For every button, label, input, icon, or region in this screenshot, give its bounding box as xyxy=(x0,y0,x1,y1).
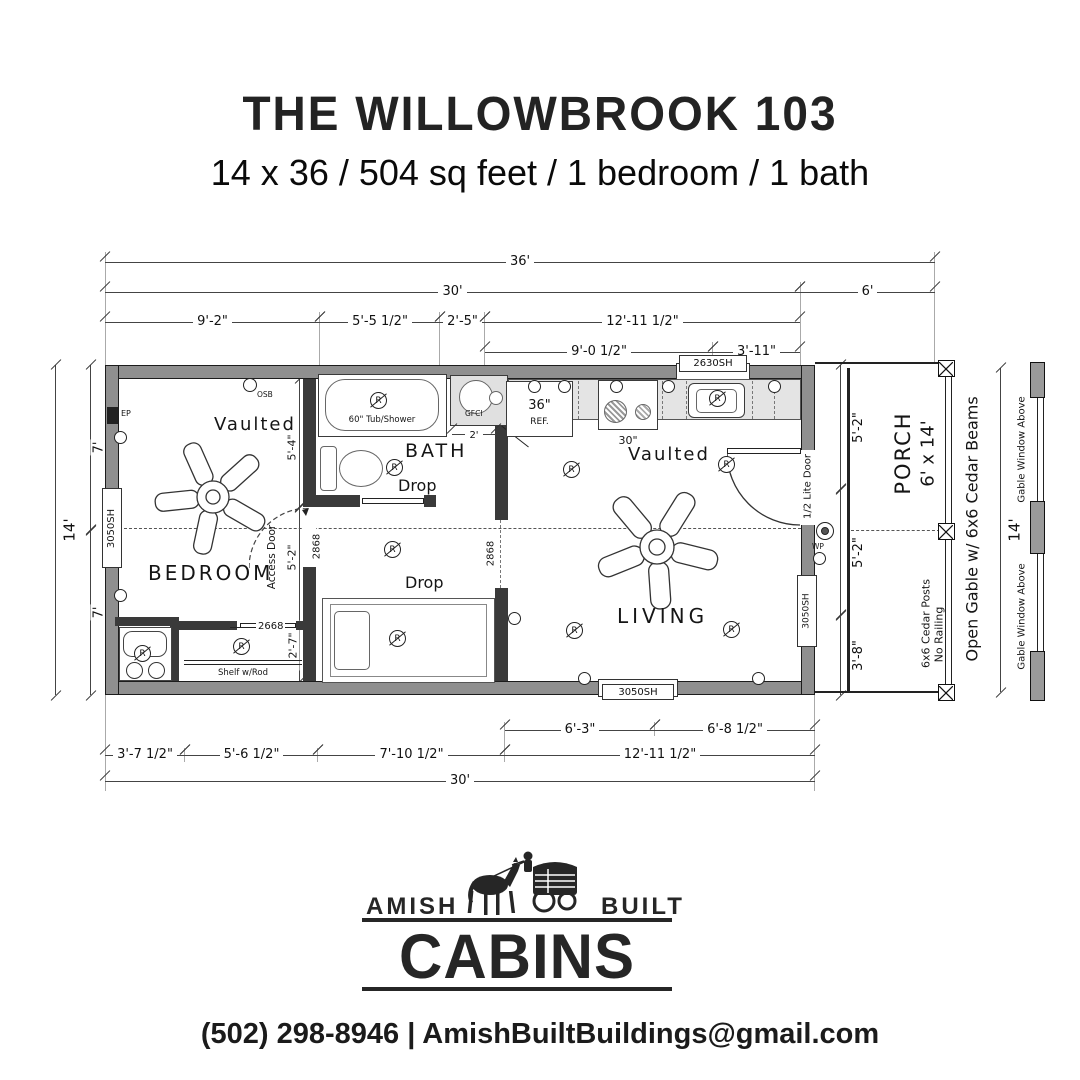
porch-post-middle xyxy=(938,523,955,540)
tub-label: 60" Tub/Shower xyxy=(330,415,434,425)
wall-closet-top xyxy=(179,621,237,630)
gable-post-middle xyxy=(1030,501,1045,554)
window-left-label: 3050SH xyxy=(107,508,118,547)
wall-closet-top-stub xyxy=(296,621,303,630)
wall-utility-top xyxy=(115,617,178,626)
dim-bottom-1211: 12'-11 1/2" xyxy=(505,755,815,763)
contact-line: (502) 298-8946 | AmishBuiltBuildings@gma… xyxy=(0,1018,1080,1051)
receptacle-symbol: R xyxy=(384,541,401,558)
gable-post-top xyxy=(1030,362,1045,398)
outlet-symbol xyxy=(578,672,591,685)
receptacle-symbol: R xyxy=(233,638,250,655)
front-door-leaf xyxy=(727,448,801,454)
logo-rule-bottom xyxy=(362,987,672,991)
window-bottom-text: 3050SH xyxy=(618,687,657,698)
wall-bath-bottom-stub xyxy=(424,495,436,507)
fridge-label: REF. xyxy=(506,417,573,427)
dim-living-width: 12'-11 1/2" xyxy=(485,322,800,330)
receptacle-letter: R xyxy=(375,396,381,406)
window-bottom-label: 3050SH xyxy=(602,684,674,700)
dim-vanity-width: 2'-5" xyxy=(440,322,485,330)
dim-overall-width: 36' xyxy=(105,262,935,270)
extension-line xyxy=(319,312,320,365)
wall-bath-bottom xyxy=(316,495,360,507)
porch-posts-note: 6x6 Cedar Posts xyxy=(920,565,933,683)
dim-bottom-56: 5'-6 1/2" xyxy=(185,755,318,763)
dim-bottom-68: 6'-8 1/2" xyxy=(655,730,815,738)
dim-right-52b: 5'-2" xyxy=(840,489,876,615)
logo-cabins: CABINS xyxy=(350,920,684,992)
utility-knob xyxy=(126,662,143,679)
dim-bottom-30: 30' xyxy=(105,781,815,789)
dim-bottom-63: 6'-3" xyxy=(505,730,655,738)
ep-label: EP xyxy=(121,409,131,418)
receptacle-symbol: R xyxy=(386,459,403,476)
dim-int-54 xyxy=(299,379,300,507)
gable-window-note-bottom: Gable Window Above xyxy=(1017,557,1028,677)
extension-line xyxy=(105,695,106,791)
wall-bedroom-bath xyxy=(303,379,316,507)
front-door-label: 1/2 Lite Door xyxy=(803,442,814,532)
open-gable-note: Open Gable w/ 6x6 Cedar Beams xyxy=(963,412,982,662)
access-door-size: 2868 xyxy=(312,523,323,571)
cabinet-line xyxy=(686,381,687,419)
receptacle-symbol: R xyxy=(370,392,387,409)
outlet-symbol xyxy=(528,380,541,393)
bedroom-ceiling-fan xyxy=(152,436,274,558)
closet-door-size: 2668 xyxy=(256,621,285,632)
living-ceiling-fan xyxy=(592,482,722,612)
dim-bottom-710: 7'-10 1/2" xyxy=(318,755,505,763)
closet-shelf-line2 xyxy=(184,664,302,665)
outlet-symbol xyxy=(114,431,127,444)
closet-door-leader xyxy=(230,627,256,628)
utility-knob xyxy=(148,662,165,679)
dim-left-14: 14' xyxy=(55,365,83,695)
dim-cabin-width: 30' xyxy=(105,292,800,300)
outlet-symbol xyxy=(768,380,781,393)
closet-shelf-line xyxy=(184,660,302,661)
living-vaulted-label: Vaulted xyxy=(628,444,710,465)
window-left-3050: 3050SH xyxy=(102,488,122,568)
outlet-symbol xyxy=(662,380,675,393)
hall-drop-label: Drop xyxy=(405,573,444,592)
outlet-symbol xyxy=(508,612,521,625)
porch-railing-note: No Railing xyxy=(933,576,946,694)
receptacle-symbol: R xyxy=(563,461,580,478)
ridge-line-porch xyxy=(851,530,940,531)
wall-hall-living xyxy=(495,588,508,681)
bath-room-label: BATH xyxy=(405,440,467,462)
dim-bath-width: 5'-5 1/2" xyxy=(320,322,440,330)
gable-post-bottom xyxy=(1030,651,1045,701)
dim-bottom-37: 3'-7 1/2" xyxy=(105,755,185,763)
outlet-symbol xyxy=(558,380,571,393)
closet-shelf-label: Shelf w/Rod xyxy=(184,668,302,678)
gable-window-note-top: Gable Window Above xyxy=(1017,390,1028,510)
wp-light-inner xyxy=(821,527,829,535)
cabinet-line xyxy=(752,381,753,419)
burner-small xyxy=(635,404,651,420)
bedroom-vaulted-label: Vaulted xyxy=(214,414,296,435)
window-right-label: 3050SH xyxy=(802,593,812,628)
osb-label: OSB xyxy=(257,390,273,399)
logo-built: BUILT xyxy=(601,893,685,921)
receptacle-symbol: R xyxy=(389,630,406,647)
bath-pocket-door xyxy=(362,498,424,504)
receptacle-symbol: R xyxy=(723,621,740,638)
page-title: THE WILLOWBROOK 103 xyxy=(0,85,1080,142)
receptacle-symbol: R xyxy=(134,645,151,662)
wp-label: WP xyxy=(812,542,824,551)
porch-label: PORCH xyxy=(891,398,915,508)
porch-cabin-edge xyxy=(847,368,850,692)
extension-line xyxy=(439,312,440,365)
window-kitchen-label: 2630SH xyxy=(679,355,747,372)
porch-post-top xyxy=(938,360,955,377)
toilet-bowl xyxy=(339,450,383,487)
dim-right-52a: 5'-2" xyxy=(840,365,876,489)
outlet-symbol xyxy=(752,672,765,685)
floor-plan-sheet: THE WILLOWBROOK 103 14 x 36 / 504 sq fee… xyxy=(0,0,1080,1080)
burner-large xyxy=(604,400,627,423)
front-door-swing-arc xyxy=(727,452,801,526)
bed-pillow xyxy=(334,611,370,670)
porch-top-edge xyxy=(815,362,948,364)
electrical-panel xyxy=(107,407,118,424)
living-room-label: LIVING xyxy=(617,604,708,628)
window-right-3050: 3050SH xyxy=(797,575,817,647)
wall-bedroom-lower xyxy=(303,567,316,681)
outlet-symbol xyxy=(610,380,623,393)
porch-size-label: 6' x 14' xyxy=(918,399,939,509)
receptacle-symbol: R xyxy=(566,622,583,639)
dim-porch-width: 6' xyxy=(800,292,935,300)
logo-amish: AMISH xyxy=(366,893,458,921)
wall-bottom xyxy=(105,681,815,695)
toilet-tank xyxy=(320,446,337,491)
vanity-faucet xyxy=(489,391,503,405)
outlet-symbol xyxy=(114,589,127,602)
gfci-label: GFCI xyxy=(465,409,483,418)
ceiling-light xyxy=(243,378,257,392)
bath-drop-label: Drop xyxy=(398,476,437,495)
porch-bottom-edge xyxy=(815,691,948,693)
receptacle-symbol: R xyxy=(709,390,726,407)
hall-opening-dashed xyxy=(500,520,501,588)
fridge-width-label: 36" xyxy=(506,398,573,413)
cabinet-line xyxy=(578,381,579,419)
page-subtitle: 14 x 36 / 504 sq feet / 1 bedroom / 1 ba… xyxy=(0,152,1080,194)
dim-right-38: 3'-8" xyxy=(840,615,876,695)
hall-opening-size: 2868 xyxy=(486,531,497,577)
horse-buggy-logo xyxy=(460,843,605,923)
bedroom-room-label: BEDROOM xyxy=(148,561,273,585)
outlet-symbol xyxy=(813,552,826,565)
dim-bedroom-width: 9'-2" xyxy=(105,322,320,330)
receptacle-symbol: R xyxy=(718,456,735,473)
window-kitchen-text: 2630SH xyxy=(693,358,732,369)
